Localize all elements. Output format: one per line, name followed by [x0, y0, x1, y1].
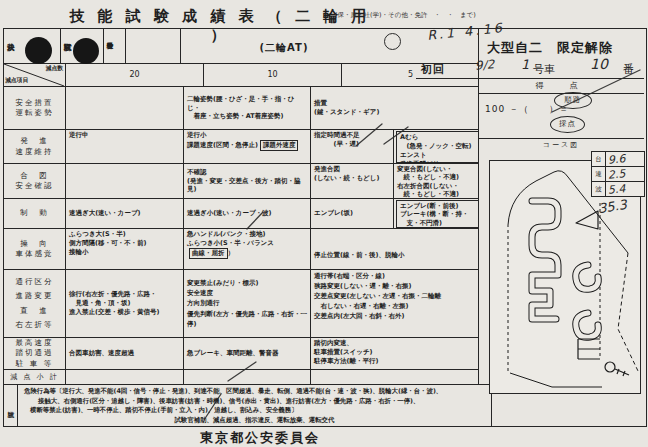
points-header-row: 減点数 減点項目 20 10 5	[4, 63, 479, 86]
cell-5: 停止位置(線・前・後)、脱輪小	[311, 229, 479, 269]
engine-brake-box: エンブレ(断・前後) ブレーキ(構・断・持・ 支・不円滑)	[396, 200, 479, 228]
route-stamp: 順路	[554, 92, 592, 109]
handwritten-seat-number: 10	[590, 56, 608, 72]
cell-20: 速過ぎ大(速い・カーブ)	[66, 199, 184, 228]
form-body: 決裁 試験官 受験番号 (二輪AT) 減点数 減点項目 20 10	[3, 28, 647, 427]
cell-20	[66, 87, 184, 129]
cell-10: 不確認 (発進・変更・交差点・後方・踏切・脇見)	[184, 164, 311, 198]
cell-10-close: ）	[228, 249, 235, 257]
cell-5-left: 発進合図 (しない・続・もどし)	[311, 164, 394, 198]
suspension-line3: 横断等禁止(妨害)、一時不停止、踏切不停止(手前・立入・内)、追越し、割込み、安…	[30, 406, 487, 416]
license-type: 大型自二 限定解除	[487, 39, 642, 57]
col-20-header: 20	[66, 64, 204, 86]
cell-10-text: 急ハンドル(バンク・接地) ふらつき小(S・半・バランス	[187, 230, 274, 247]
row-label: 操 向 車体感覚	[4, 229, 66, 269]
course-map-label: コース図	[478, 140, 644, 150]
first-attempt-label: 初回	[421, 62, 445, 77]
cell-10: 急ブレーキ、車間距離、警音器	[184, 338, 311, 369]
suspension-line1: 危険行為等〔逆行大、発進不能(4回・信号・停止・発進)、到達不能、区間超過、暴走…	[24, 387, 487, 397]
deduction-table: 決裁 試験官 受験番号 (二輪AT) 減点数 減点項目 20 10	[4, 29, 479, 385]
examiner-stamp	[73, 38, 99, 64]
corner-bottom-label: 減点項目	[5, 77, 28, 85]
time-row-nami: 波 5.4	[592, 181, 644, 196]
cell-10	[184, 370, 311, 385]
row-label: 制 動	[4, 199, 66, 228]
cell-10: 二輪姿勢(腰・ひざ・足・手・指・ひじ・ 着座・立ち姿勢・AT着座姿勢)	[184, 87, 311, 129]
suspension-line4: 試験官補助、減点超過、指示違反、運転放棄、運転交代	[22, 416, 487, 426]
scanned-exam-score-sheet: { "page": { "title": "技 能 試 験 成 績 表 （ 二 …	[0, 0, 648, 447]
cell-10: 変更禁止(みだり・標示) 安全速度 方向別通行 優先判断(左方・優先路・広路・右…	[184, 270, 311, 337]
handwritten-time-ren: 2.5	[605, 167, 626, 182]
col-10-header: 10	[204, 64, 342, 86]
table-row: 合 図 安全確認 不確認 (発進・変更・交差点・後方・踏切・脇見) 発進合図 (…	[4, 163, 479, 198]
row-label: 通行区分 進路変更 直 進 右左折等	[4, 270, 66, 337]
suspension-line2: 接触大、右側通行(区分・追越し・障害)、後車妨害(妨害・時機)、信号(赤出・黄出…	[38, 397, 487, 407]
curve-bend-box: 曲線・屈折	[189, 248, 228, 259]
cell-20: 逆行中	[66, 130, 184, 163]
cell-10-text: 逆行小 課題速度(区間・急停止)	[187, 131, 258, 149]
time-label-ren: 連	[592, 167, 606, 181]
table-row: 制 動 速過ぎ大(速い・カーブ) 速過ぎ小(速い・カーブ・波) エンブレ(坂) …	[4, 198, 479, 228]
form-title-note: (保・原・社(学)・その他・免許 ・ ・ まで)	[335, 11, 535, 20]
cell-10: 速過ぎ小(速い・カーブ・波)	[184, 199, 311, 228]
cell-5-right: エンブレ(断・前後) ブレーキ(構・断・持・ 支・不円滑)	[394, 199, 479, 228]
exam-no-write-cell	[126, 29, 181, 63]
car-number-suffix: 号車	[533, 62, 555, 77]
cell-5-left: 指定時間過不足 (早・遅)	[311, 130, 394, 163]
cell-5	[311, 370, 479, 385]
cell-5-left: エンブレ(坂)	[311, 199, 394, 228]
subtotal-row: 減 点 小 計	[4, 369, 479, 385]
row-label: 最高速度 踏切通過 駐 車 等	[4, 338, 66, 369]
handwritten-time-dai: 9.6	[605, 152, 626, 167]
row-label: 合 図 安全確認	[4, 164, 66, 198]
task-speed-exempt-box: 課題外速度	[260, 140, 299, 151]
time-label-dai: 台	[592, 152, 606, 166]
corner-top-label: 減点数	[46, 65, 63, 73]
cell-20	[66, 164, 184, 198]
panel-line-1	[416, 78, 644, 79]
corner-cell: 減点数 減点項目	[4, 64, 66, 86]
handwritten-attempt-date: 9/2	[475, 57, 495, 72]
table-row: 操 向 車体感覚 ふらつき大(S・半) 側方間隔(移・可・不・前) 接輪小 急ハ…	[4, 228, 479, 269]
handwritten-time-nami: 5.4	[605, 182, 626, 197]
course-time-table: 台 9.6 連 2.5 波 5.4	[591, 151, 645, 197]
table-row: 最高速度 踏切通過 駐 車 等 合図車妨害、速度超過 急ブレーキ、車間距離、警音…	[4, 337, 479, 369]
cell-20: ふらつき大(S・半) 側方間隔(移・可・不・前) 接輪小	[66, 229, 184, 269]
suspension-text: 危険行為等〔逆行大、発進不能(4回・信号・停止・発進)、到達不能、区間超過、暴走…	[18, 385, 491, 426]
cell-20	[66, 370, 184, 385]
cell-20: 合図車妨害、速度超過	[66, 338, 184, 369]
panel-line-3	[478, 138, 644, 139]
cell-10: 急ハンドル(バンク・接地) ふらつき小(S・半・バランス曲線・屈折）	[184, 229, 311, 269]
vehicle-class: (二輪AT)	[249, 41, 319, 55]
cell-5: 措置 (鍵・スタンド・ギア)	[311, 87, 479, 129]
table-row: 安全措置 運転姿勢 二輪姿勢(腰・ひざ・足・手・指・ひじ・ 着座・立ち姿勢・AT…	[4, 86, 479, 129]
cell-5: 通行帯(右端・区分・線) 狭路変更(しない・遅・離・右振) 交差点変更(左しない…	[311, 270, 479, 337]
cell-5-right: 変更合図(しない・ 続・もどし・不適) 右左折合図(しない・ 続・もどし・不適)	[394, 164, 479, 198]
time-label-nami: 波	[592, 182, 606, 196]
cell-5-right: Aむら (急発・ノック・空転) エンスト 発進手間どり	[394, 130, 479, 163]
subtotal-label: 減 点 小 計	[4, 370, 66, 385]
suspension-label-cell: 試験中止	[4, 385, 18, 426]
time-row-dai: 台 9.6	[592, 152, 644, 166]
row-label: 安全措置 運転姿勢	[4, 87, 66, 129]
col-5-header: 5	[342, 64, 479, 86]
table-row: 発 進 速度維持 逆行中 逆行小 課題速度(区間・急停止)課題外速度 指定時間過…	[4, 129, 479, 163]
kessai-stamp	[25, 37, 52, 64]
exam-no-label-cell: 受験番号	[104, 29, 126, 63]
cell-10: 逆行小 課題速度(区間・急停止)課題外速度	[184, 130, 311, 163]
row-label: 発 進 速度維持	[4, 130, 66, 163]
cell-5: 踏切内変速、 駐車措置(スイッチ) 駐停車方法(離・平行)	[311, 338, 479, 369]
score-label: 得 点	[478, 80, 644, 91]
seat-number-suffix: 番	[623, 62, 634, 77]
a-mura-box: Aむら (急発・ノック・空転) エンスト 発進手間どり	[396, 131, 479, 163]
suspension-box: 試験中止 危険行為等〔逆行大、発進不能(4回・信号・停止・発進)、到達不能、区間…	[4, 384, 492, 426]
cell-20: 徐行(右左折・優先路・広路・ 見通・角・頂・坂) 進入禁止(交差・横歩・黄信号)	[66, 270, 184, 337]
grading-stamp: 採点	[550, 116, 585, 133]
handwritten-car-number: 1	[521, 57, 529, 72]
time-row-ren: 連 2.5	[592, 166, 644, 181]
footer-authority: 東京都公安委員会	[160, 429, 360, 447]
table-row: 通行区分 進路変更 直 進 右左折等 徐行(右左折・優先路・広路・ 見通・角・頂…	[4, 269, 479, 337]
handwritten-circle-mark	[384, 33, 401, 50]
